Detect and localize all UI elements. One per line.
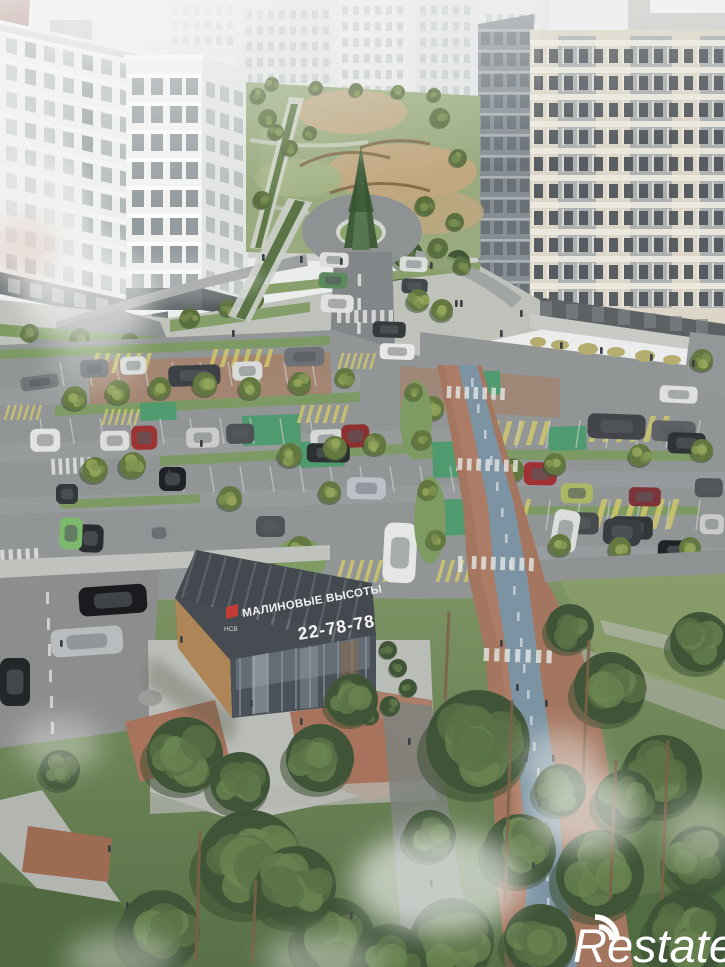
svg-text:НСВ: НСВ — [224, 626, 238, 633]
svg-text:Restate: Restate — [573, 919, 725, 967]
